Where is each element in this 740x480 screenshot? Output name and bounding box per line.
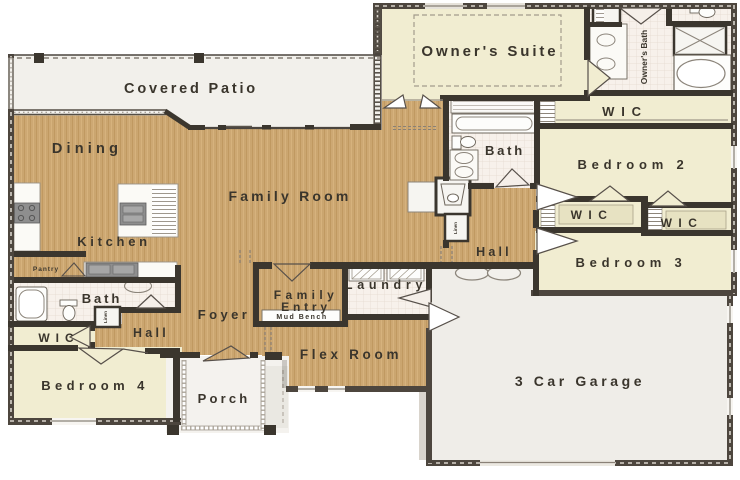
svg-text:Kitchen: Kitchen: [77, 234, 151, 249]
svg-text:WIC: WIC: [602, 104, 648, 119]
svg-text:Bedroom 3: Bedroom 3: [575, 255, 686, 270]
svg-text:Pantry: Pantry: [33, 266, 59, 273]
svg-text:Owner's Bath: Owner's Bath: [639, 30, 649, 84]
svg-text:Bedroom 2: Bedroom 2: [577, 157, 688, 172]
svg-text:Dining: Dining: [52, 141, 122, 157]
svg-text:Porch: Porch: [198, 391, 251, 406]
svg-text:Entry: Entry: [281, 300, 331, 314]
svg-text:Bath: Bath: [485, 143, 525, 158]
svg-text:3 Car Garage: 3 Car Garage: [515, 373, 645, 389]
svg-text:Flex Room: Flex Room: [300, 347, 402, 362]
svg-text:Foyer: Foyer: [198, 307, 250, 322]
svg-text:Hall: Hall: [476, 245, 512, 259]
svg-text:Covered Patio: Covered Patio: [124, 81, 258, 97]
svg-text:Linen: Linen: [453, 222, 458, 234]
svg-text:Mud Bench: Mud Bench: [276, 314, 327, 321]
svg-text:Laundry: Laundry: [345, 278, 427, 292]
svg-text:Linen: Linen: [103, 311, 108, 323]
svg-text:Bedroom 4: Bedroom 4: [41, 378, 149, 393]
svg-text:Owner's Suite: Owner's Suite: [421, 43, 558, 60]
svg-text:Bath: Bath: [82, 291, 123, 306]
svg-text:Hall: Hall: [133, 326, 169, 340]
svg-text:Family Room: Family Room: [228, 188, 351, 204]
svg-text:WIC: WIC: [661, 216, 704, 230]
svg-text:WIC: WIC: [571, 208, 614, 222]
svg-text:WIC: WIC: [38, 331, 79, 345]
